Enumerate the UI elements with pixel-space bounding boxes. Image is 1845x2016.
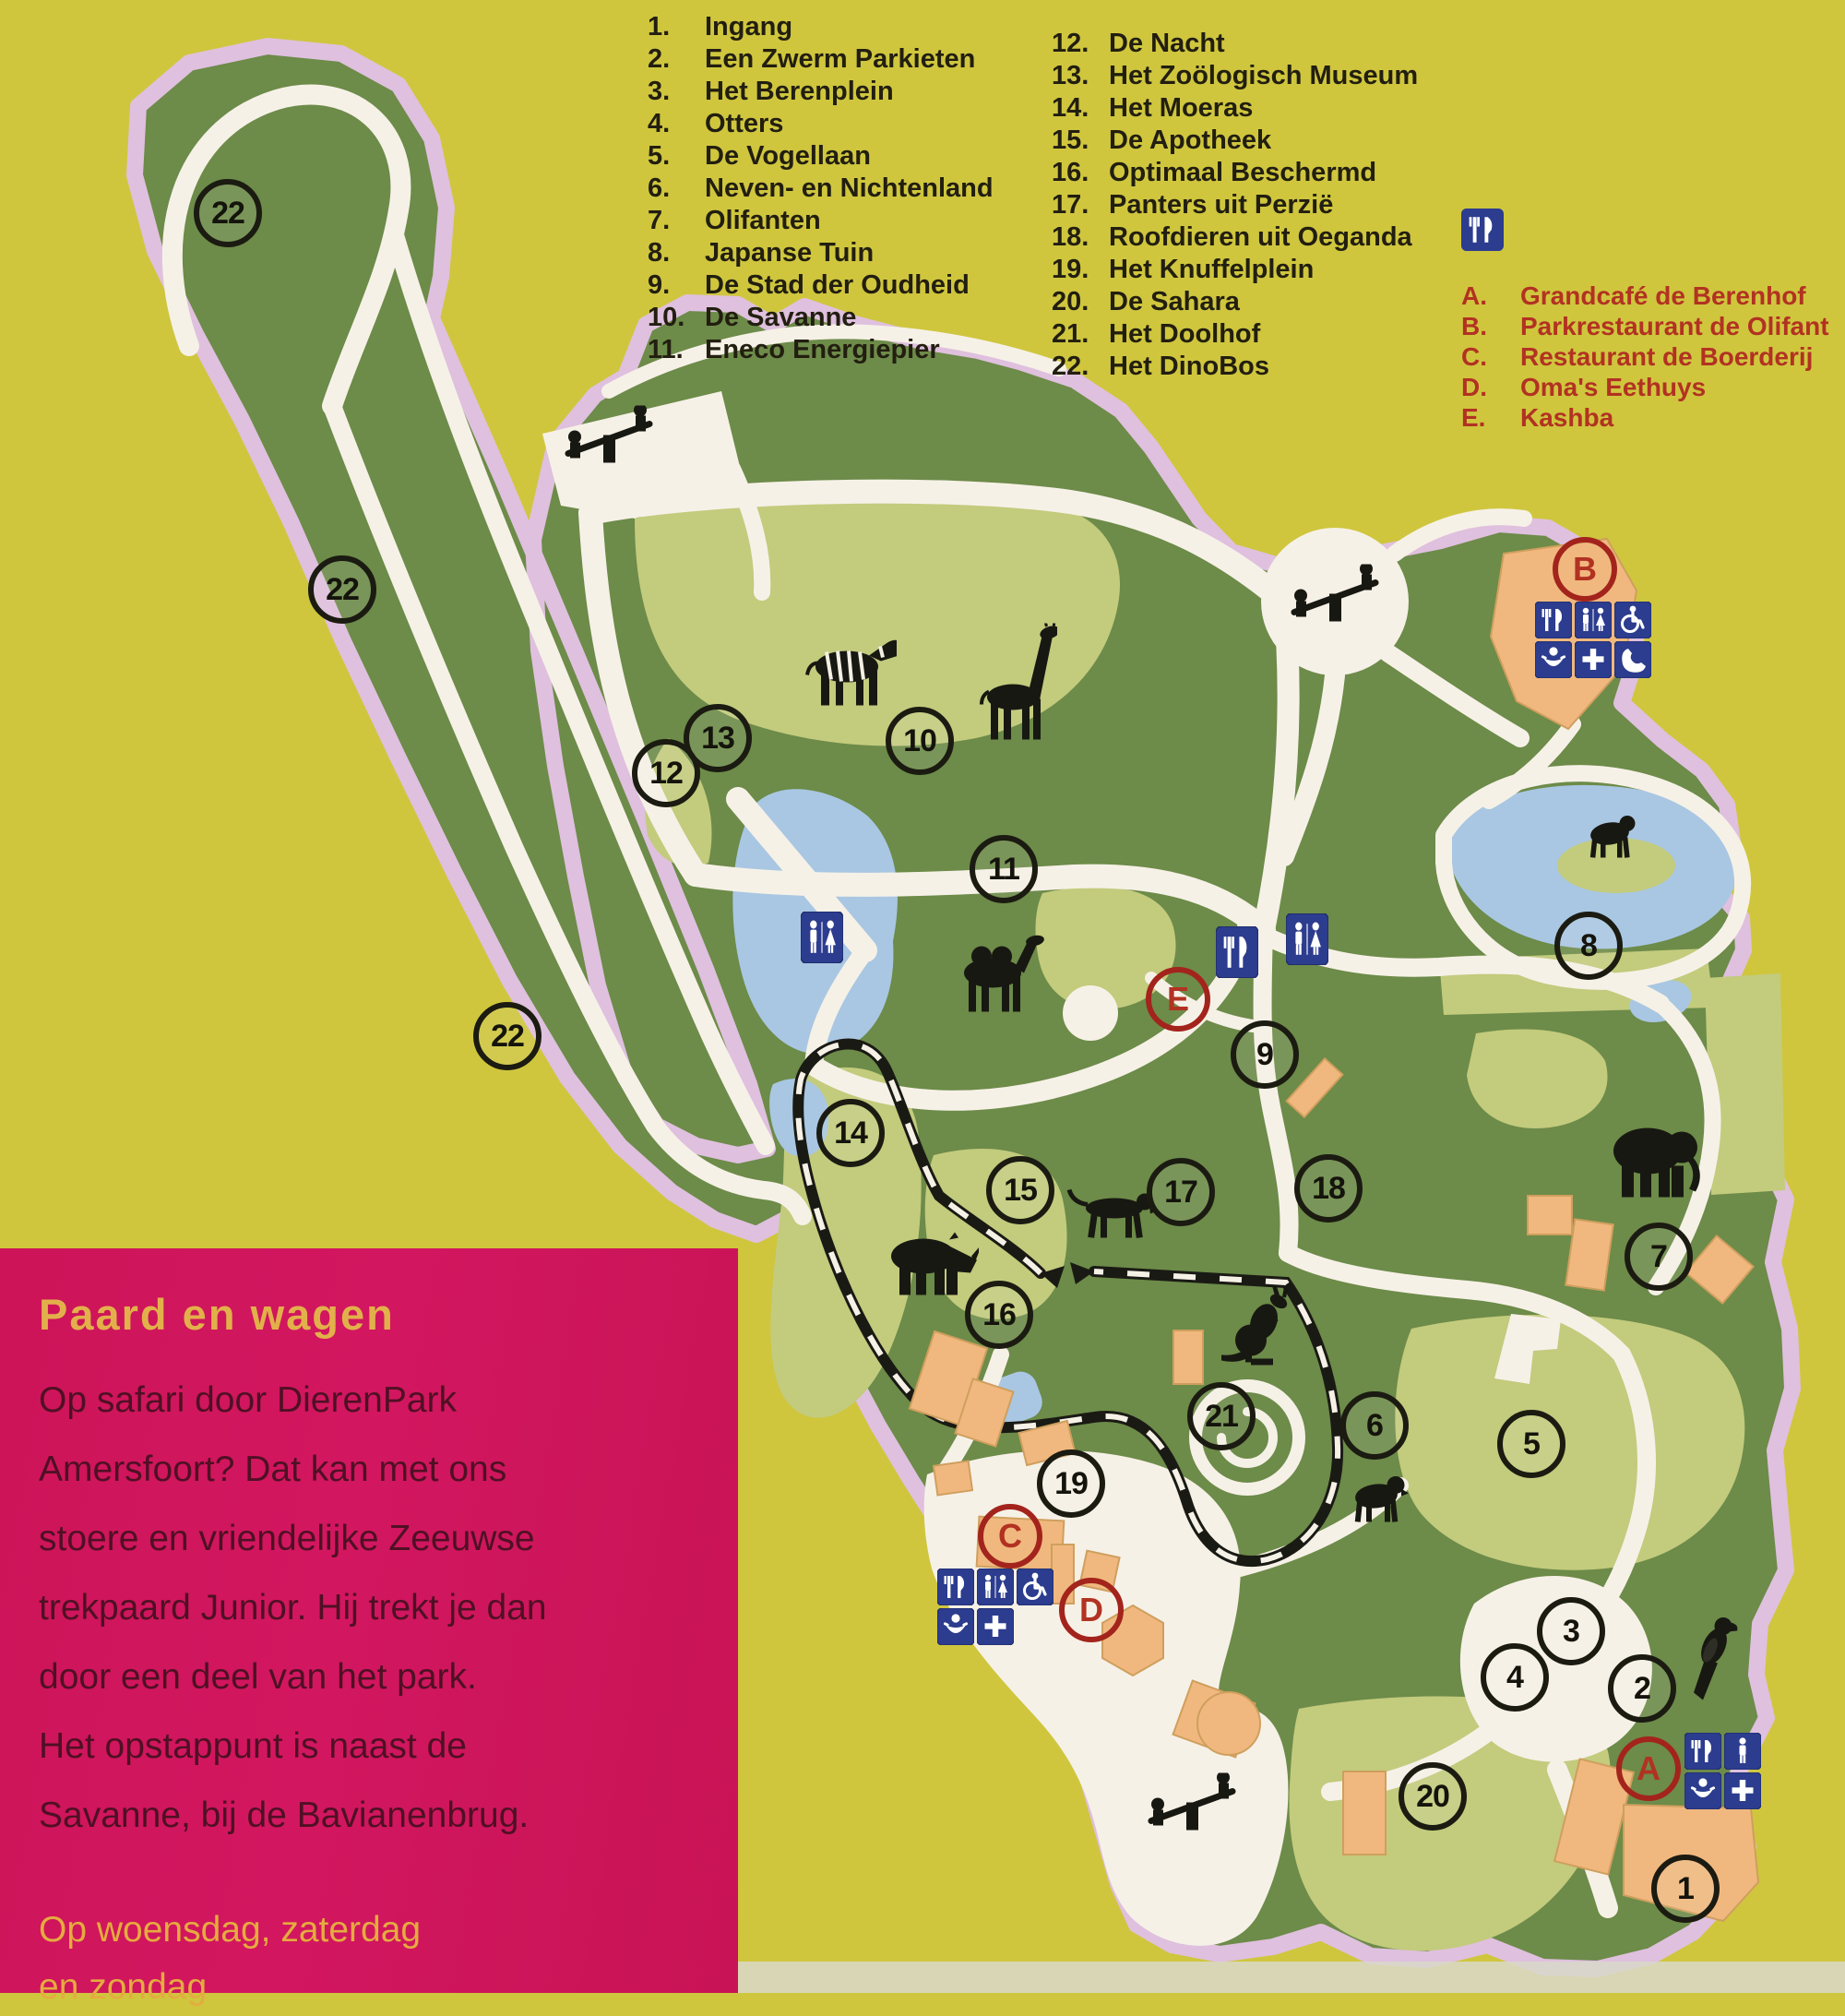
wheelchair-icon — [1614, 602, 1651, 638]
legend-item: 18.Roofdieren uit Oeganda — [1052, 221, 1418, 254]
map-marker-15: 15 — [986, 1156, 1054, 1224]
legend-item: 8.Japanse Tuin — [648, 237, 994, 269]
camel-icon — [943, 927, 1046, 1020]
restaurant-item-label: Kashba — [1520, 402, 1613, 433]
legend-item-number: 3. — [648, 76, 705, 108]
legend-item: 17.Panters uit Perzië — [1052, 189, 1418, 221]
toilets-center — [1286, 913, 1328, 965]
legend-item: 13.Het Zoölogisch Museum — [1052, 60, 1418, 92]
legend-item-label: Panters uit Perzië — [1109, 189, 1333, 221]
legend-item-label: De Apotheek — [1109, 125, 1271, 157]
legend-item-number: 6. — [648, 173, 705, 205]
legend-item-label: Het Knuffelplein — [1109, 254, 1314, 286]
legend-item-number: 10. — [648, 302, 705, 334]
wheelchair-icon — [1017, 1569, 1053, 1605]
giraffe-icon — [972, 624, 1057, 746]
legend-item-number: 7. — [648, 205, 705, 237]
legend-item: 6.Neven- en Nichtenland — [648, 173, 994, 205]
legend-item: 15.De Apotheek — [1052, 125, 1418, 157]
map-marker-22: 22 — [194, 179, 262, 247]
legend-item: 3.Het Berenplein — [648, 76, 994, 108]
facility-row — [1216, 926, 1258, 978]
restaurant-item-label: Oma's Eethuys — [1520, 372, 1706, 402]
info-box-body: Op safari door DierenPark Amersfoort? Da… — [39, 1366, 701, 1850]
phone-icon — [1614, 641, 1651, 678]
legend-item-label: Olifanten — [705, 205, 821, 237]
baboon-icon — [1337, 1470, 1416, 1539]
legend-item-label: Neven- en Nichtenland — [705, 173, 994, 205]
legend-item: 21.Het Doolhof — [1052, 318, 1418, 351]
legend-item-label: Ingang — [705, 11, 792, 43]
first-aid-icon — [977, 1608, 1014, 1645]
legend-item-number: 19. — [1052, 254, 1109, 286]
legend-item: 16.Optimaal Beschermd — [1052, 157, 1418, 189]
restaurant-item-letter: E. — [1461, 402, 1520, 433]
legend-item-label: De Nacht — [1109, 28, 1225, 60]
legend-item-label: Optimaal Beschermd — [1109, 157, 1376, 189]
legend-item-number: 16. — [1052, 157, 1109, 189]
facility-row — [937, 1608, 1053, 1645]
rhino-icon — [875, 1223, 979, 1302]
elephant-icon — [1595, 1114, 1708, 1209]
playground-seesaw-icon — [563, 406, 655, 477]
facility-row — [1684, 1733, 1761, 1770]
map-marker-16: 16 — [965, 1281, 1033, 1349]
legend-restaurants: A.Grandcafé de BerenhofB.Parkrestaurant … — [1461, 209, 1829, 433]
restaurant-item-letter: C. — [1461, 341, 1520, 372]
legend-item-number: 9. — [648, 269, 705, 302]
legend-item-number: 11. — [648, 334, 705, 366]
restaurant-marker-c: C — [978, 1504, 1042, 1569]
facilities-entrance — [1684, 1733, 1761, 1809]
facility-row — [1286, 913, 1328, 965]
legend-item-label: De Savanne — [705, 302, 856, 334]
legend-item: 7.Olifanten — [648, 205, 994, 237]
legend-item-number: 1. — [648, 11, 705, 43]
map-marker-11: 11 — [970, 835, 1038, 903]
baby-change-icon — [1535, 641, 1572, 678]
toilet-single-icon — [1724, 1733, 1761, 1770]
legend-item-label: De Sahara — [1109, 286, 1240, 318]
map-marker-22: 22 — [473, 1002, 542, 1070]
legend-item-number: 5. — [648, 140, 705, 173]
legend-item-number: 15. — [1052, 125, 1109, 157]
legend-item-label: Eneco Energiepier — [705, 334, 940, 366]
facilities-boerderij — [937, 1569, 1053, 1645]
map-marker-8: 8 — [1554, 912, 1623, 980]
playground-seesaw-icon — [1146, 1773, 1238, 1844]
map-marker-3: 3 — [1537, 1597, 1605, 1665]
map-marker-13: 13 — [684, 704, 752, 772]
restaurant-list: A.Grandcafé de BerenhofB.Parkrestaurant … — [1461, 280, 1829, 433]
legend-item-label: Het DinoBos — [1109, 351, 1269, 383]
legend-item-number: 18. — [1052, 221, 1109, 254]
legend-item: 12.De Nacht — [1052, 28, 1418, 60]
cutlery-icon — [1216, 926, 1258, 978]
legend-item: 20.De Sahara — [1052, 286, 1418, 318]
legend-item: 11.Eneco Energiepier — [648, 334, 994, 366]
map-marker-1: 1 — [1651, 1855, 1720, 1923]
map-marker-20: 20 — [1399, 1762, 1467, 1831]
info-box: Paard en wagen Op safari door DierenPark… — [0, 1248, 738, 1993]
legend-item-label: De Vogellaan — [705, 140, 871, 173]
restaurant-item: D.Oma's Eethuys — [1461, 372, 1829, 402]
legend-item-label: Otters — [705, 108, 783, 140]
legend-item-label: Een Zwerm Parkieten — [705, 43, 975, 76]
legend-item-number: 20. — [1052, 286, 1109, 318]
legend-attractions-1-11: 1.Ingang2.Een Zwerm Parkieten3.Het Beren… — [648, 11, 994, 366]
legend-attractions-12-22: 12.De Nacht13.Het Zoölogisch Museum14.He… — [1052, 28, 1418, 383]
legend-item-number: 8. — [648, 237, 705, 269]
legend-item: 5.De Vogellaan — [648, 140, 994, 173]
facility-row — [1684, 1772, 1761, 1809]
facilities-parkrestaurant — [1535, 602, 1651, 678]
first-aid-icon — [1575, 641, 1612, 678]
restaurant-marker-b: B — [1553, 537, 1617, 602]
legend-item: 22.Het DinoBos — [1052, 351, 1418, 383]
baby-change-icon — [937, 1608, 974, 1645]
facility-row — [937, 1569, 1053, 1605]
toilets-icon — [977, 1569, 1014, 1605]
map-marker-4: 4 — [1481, 1643, 1549, 1712]
facility-row — [1535, 602, 1651, 638]
legend-item: 10.De Savanne — [648, 302, 994, 334]
info-box-schedule: Op woensdag, zaterdag en zondag — [39, 1902, 701, 2016]
legend-item-number: 13. — [1052, 60, 1109, 92]
legend-item: 19.Het Knuffelplein — [1052, 254, 1418, 286]
map-marker-9: 9 — [1231, 1020, 1299, 1089]
cutlery-icon — [1461, 209, 1504, 251]
legend-item-label: Het Moeras — [1109, 92, 1253, 125]
monkey-icon — [1573, 810, 1647, 874]
restaurant-marker-e: E — [1146, 967, 1210, 1032]
cutlery-icon — [1684, 1733, 1721, 1770]
restaurant-marker-d: D — [1059, 1578, 1124, 1642]
legend-item-number: 12. — [1052, 28, 1109, 60]
legend-item-label: Het Doolhof — [1109, 318, 1260, 351]
cutlery-icon — [937, 1569, 974, 1605]
cutlery-kashba — [1216, 926, 1258, 978]
restaurant-item-label: Parkrestaurant de Olifant — [1520, 311, 1829, 341]
legend-item-label: De Stad der Oudheid — [705, 269, 970, 302]
map-marker-2: 2 — [1608, 1654, 1676, 1723]
map-marker-21: 21 — [1187, 1382, 1256, 1450]
map-marker-5: 5 — [1497, 1410, 1565, 1478]
restaurant-item-letter: D. — [1461, 372, 1520, 402]
toilets-icon — [1286, 913, 1328, 965]
zebra-icon — [801, 638, 897, 720]
facility-row — [801, 912, 843, 963]
legend-item-label: Het Berenplein — [705, 76, 894, 108]
restaurant-item: E.Kashba — [1461, 402, 1829, 433]
restaurant-item-label: Grandcafé de Berenhof — [1520, 280, 1806, 311]
baby-change-icon — [1684, 1772, 1721, 1809]
map-marker-19: 19 — [1037, 1449, 1105, 1518]
legend-item: 2.Een Zwerm Parkieten — [648, 43, 994, 76]
legend-item-number: 21. — [1052, 318, 1109, 351]
map-marker-10: 10 — [886, 707, 954, 775]
legend-item-number: 17. — [1052, 189, 1109, 221]
legend-item: 4.Otters — [648, 108, 994, 140]
map-marker-6: 6 — [1340, 1391, 1409, 1460]
toilets-energiepier — [801, 912, 843, 963]
cutlery-icon — [1535, 602, 1572, 638]
legend-item: 9.De Stad der Oudheid — [648, 269, 994, 302]
toilets-icon — [1575, 602, 1612, 638]
playground-seesaw-icon — [1289, 565, 1381, 636]
restaurant-item: A.Grandcafé de Berenhof — [1461, 280, 1829, 311]
legend-item: 14.Het Moeras — [1052, 92, 1418, 125]
restaurant-item: C.Restaurant de Boerderij — [1461, 341, 1829, 372]
legend-item-number: 14. — [1052, 92, 1109, 125]
first-aid-icon — [1724, 1772, 1761, 1809]
map-marker-18: 18 — [1294, 1154, 1363, 1223]
parrot-icon — [1679, 1604, 1749, 1710]
legend-item: 1.Ingang — [648, 11, 994, 43]
info-box-title: Paard en wagen — [39, 1289, 701, 1340]
restaurant-item-label: Restaurant de Boerderij — [1520, 341, 1813, 372]
legend-item-label: Japanse Tuin — [705, 237, 874, 269]
restaurant-item-letter: A. — [1461, 280, 1520, 311]
legend-item-number: 22. — [1052, 351, 1109, 383]
restaurant-item: B.Parkrestaurant de Olifant — [1461, 311, 1829, 341]
restaurant-marker-a: A — [1616, 1736, 1681, 1801]
kangaroo-icon — [1214, 1285, 1299, 1382]
map-marker-17: 17 — [1147, 1158, 1215, 1226]
map-marker-7: 7 — [1625, 1223, 1693, 1291]
toilets-icon — [801, 912, 843, 963]
legend-item-number: 2. — [648, 43, 705, 76]
facility-row — [1535, 641, 1651, 678]
legend-item-label: Het Zoölogisch Museum — [1109, 60, 1418, 92]
map-marker-14: 14 — [816, 1099, 885, 1167]
legend-item-label: Roofdieren uit Oeganda — [1109, 221, 1412, 254]
restaurant-item-letter: B. — [1461, 311, 1520, 341]
map-marker-22: 22 — [308, 555, 376, 624]
legend-item-number: 4. — [648, 108, 705, 140]
zoo-map-page: 222222121310118914151718716216519342201A… — [0, 0, 1845, 1993]
